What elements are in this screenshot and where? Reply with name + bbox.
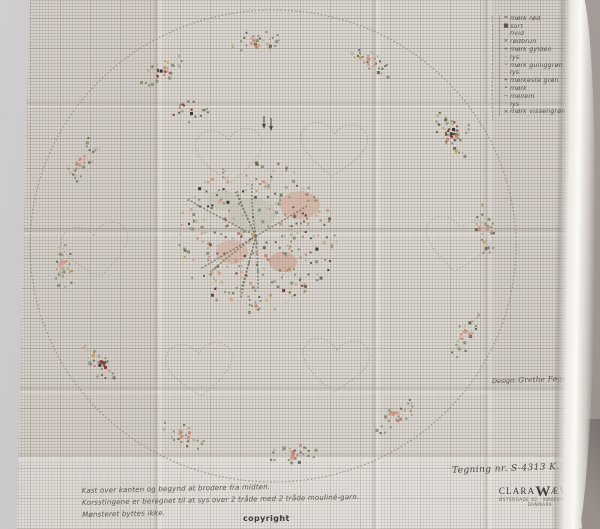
legend-symbol: − (502, 94, 510, 100)
designer-label: Design: (492, 376, 516, 385)
legend-symbol: · (502, 55, 510, 61)
legend-symbol: · (502, 102, 510, 108)
legend-symbol: + (502, 78, 510, 84)
instruction-notes: Kast over kanten og begynd at brodere fr… (82, 480, 360, 521)
legend-symbol: ∘ (502, 63, 510, 69)
legend-symbol: ÷ (502, 47, 510, 53)
legend-symbol: × (502, 110, 510, 116)
brand-name-left: CLARA (499, 486, 536, 496)
legend-symbol: = (502, 16, 510, 22)
legend-symbol: × (502, 39, 510, 45)
legend-symbol: ■ (502, 24, 510, 30)
photo-of-pattern-sheet: =mørk rød■sorthvid×rødbrun÷mørk gylden·l… (0, 0, 600, 529)
legend-symbol: • (502, 86, 510, 92)
copyright-text: copyright (243, 514, 290, 523)
pattern-sheet: =mørk rød■sorthvid×rødbrun÷mørk gylden·l… (0, 0, 600, 529)
legend-symbol: · (502, 71, 510, 77)
